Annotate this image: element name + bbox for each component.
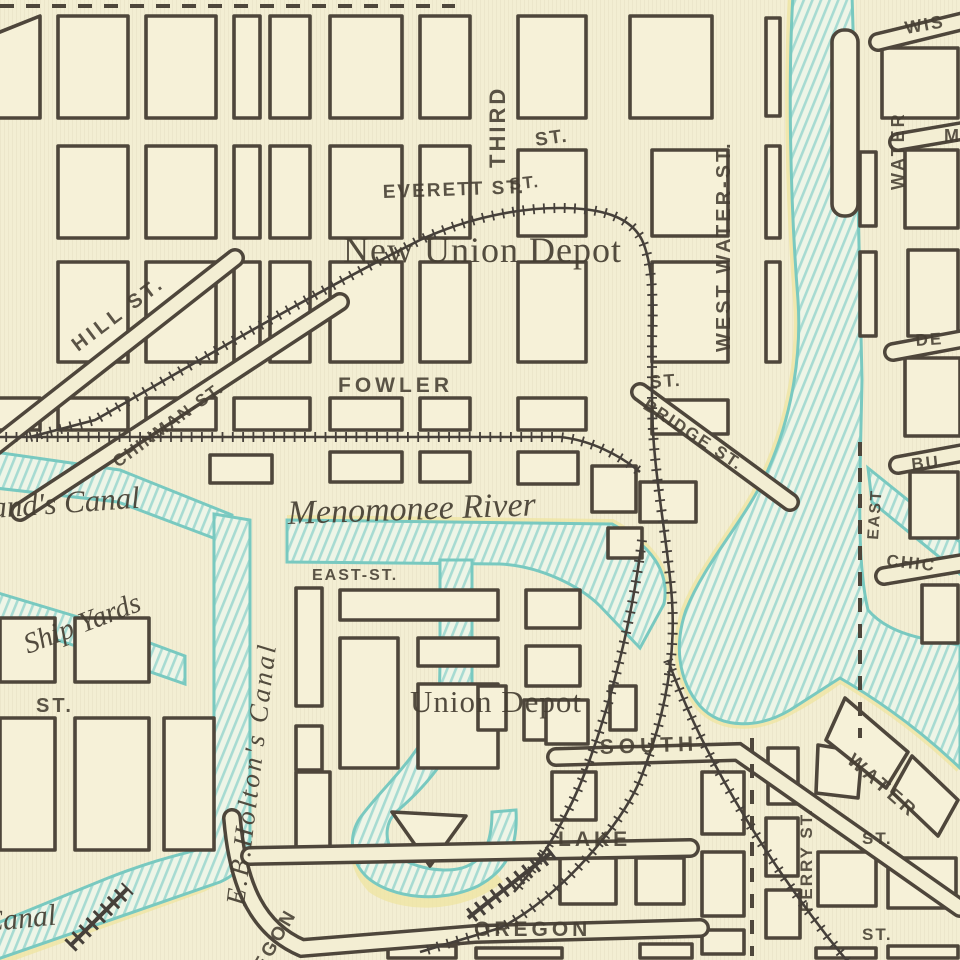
map-canvas: THIRD ST. ST. EVERETT ST. New Union Depo… xyxy=(0,0,960,960)
label-new-union-depot: New Union Depot xyxy=(343,230,622,270)
label-ferry-st: FERRY ST. xyxy=(797,808,816,912)
label-lake: LAKE xyxy=(558,828,631,851)
label-de: DE xyxy=(915,329,944,350)
label-south: SOUTH xyxy=(599,733,698,759)
label-st-left: ST. xyxy=(36,695,74,717)
label-st-se2: ST. xyxy=(862,925,893,944)
label-bu: BU xyxy=(910,452,940,474)
city-map: THIRD ST. ST. EVERETT ST. New Union Depo… xyxy=(0,0,960,960)
label-fowler-st-suffix: ST. xyxy=(649,370,682,392)
label-water-ne: WATER xyxy=(888,111,908,190)
label-st-se1: ST. xyxy=(862,829,893,848)
label-east-vert: EAST xyxy=(865,489,885,541)
label-west-water-st: WEST WATER-ST. xyxy=(713,140,735,352)
label-east-st: EAST-ST. xyxy=(312,567,398,584)
label-m-ne: M xyxy=(944,126,959,146)
label-union-depot: Union Depot xyxy=(410,684,582,719)
label-third-st: THIRD xyxy=(485,86,510,168)
label-fowler: FOWLER xyxy=(338,374,453,397)
label-everett-st: EVERETT ST. xyxy=(382,177,525,203)
label-third-st-suffix: ST. xyxy=(534,125,570,150)
label-oregon: OREGON xyxy=(474,918,591,941)
